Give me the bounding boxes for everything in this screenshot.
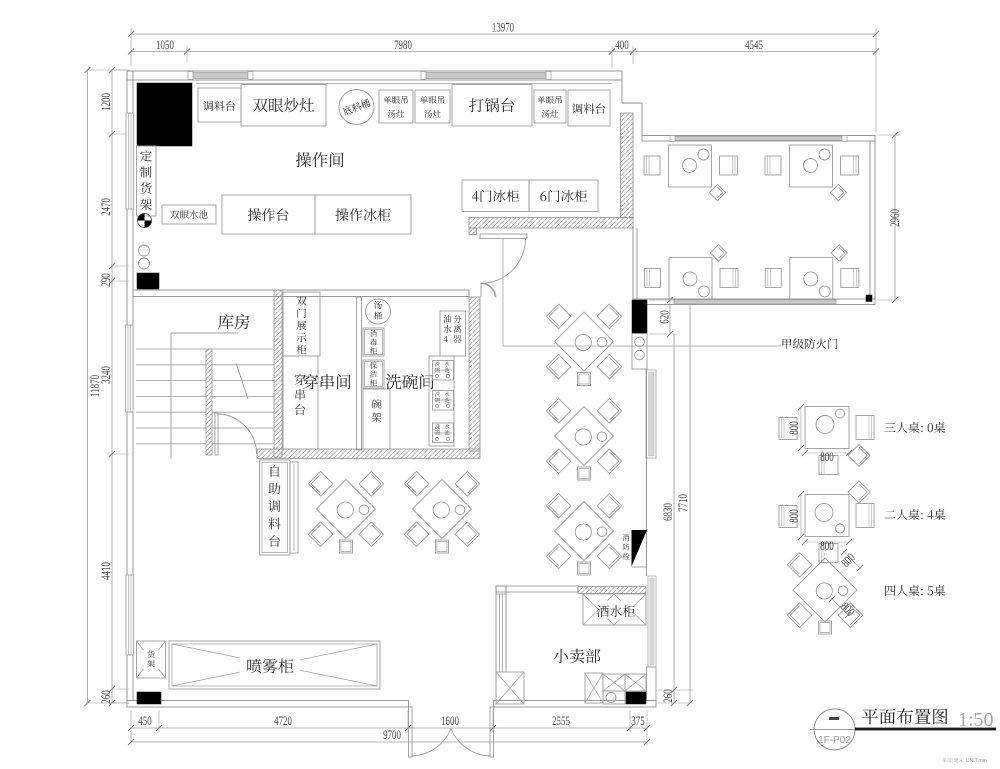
svg-text:800: 800: [787, 421, 801, 434]
svg-text:800: 800: [820, 539, 833, 553]
svg-text:450: 450: [138, 714, 151, 728]
svg-text:800: 800: [820, 450, 833, 464]
svg-text:4545: 4545: [745, 38, 763, 52]
svg-text:375: 375: [631, 714, 644, 728]
svg-text:620: 620: [658, 310, 672, 323]
svg-text:2555: 2555: [552, 714, 570, 728]
svg-text:400: 400: [615, 38, 628, 52]
svg-text:7980: 7980: [394, 38, 412, 52]
svg-text:13970: 13970: [492, 21, 514, 35]
svg-text:1600: 1600: [441, 714, 459, 728]
svg-text:4410: 4410: [99, 562, 113, 580]
svg-text:800: 800: [787, 509, 801, 522]
svg-text:290: 290: [99, 273, 113, 286]
svg-text:1F-P02: 1F-P02: [818, 735, 851, 746]
svg-text:7710: 7710: [676, 494, 690, 512]
svg-text:2470: 2470: [99, 198, 113, 216]
svg-text:1050: 1050: [156, 38, 174, 52]
svg-text:260: 260: [661, 689, 675, 702]
svg-text:UNIT:mm: UNIT:mm: [966, 758, 987, 764]
svg-text:9700: 9700: [383, 728, 401, 742]
svg-text:6830: 6830: [661, 503, 675, 521]
svg-text:3240: 3240: [99, 366, 113, 384]
svg-text:4720: 4720: [274, 714, 292, 728]
svg-text:1:50: 1:50: [958, 709, 994, 731]
svg-text:1200: 1200: [99, 93, 113, 111]
svg-text:260: 260: [99, 690, 113, 703]
svg-text:2960: 2960: [888, 209, 902, 227]
